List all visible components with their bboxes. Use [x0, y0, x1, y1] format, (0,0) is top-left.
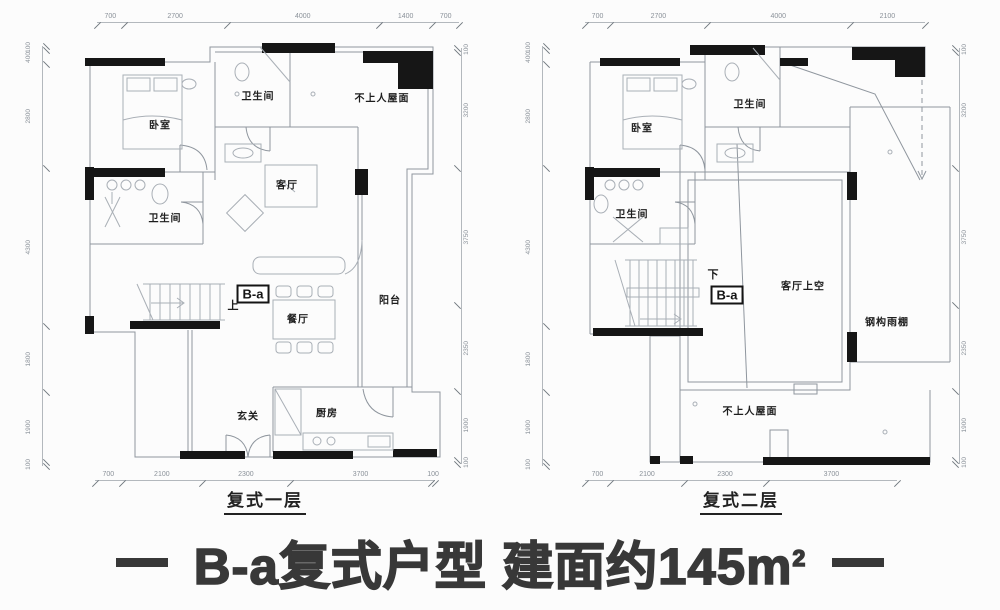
dim-value: 2800	[26, 64, 46, 167]
room-label-bedroom: 卧室	[149, 117, 171, 132]
room-label-bedroom: 卧室	[631, 120, 653, 135]
floorplan-level2: 700 2700 4000 2100 100 400 2800 4300 180…	[516, 2, 982, 516]
nightstand	[682, 79, 696, 89]
section-marker-ba: B-a	[711, 286, 744, 305]
sofa	[253, 257, 345, 274]
dim-value: 2700	[610, 10, 707, 26]
room-label-kitchen: 厨房	[316, 405, 338, 420]
title-superscript: 2	[793, 545, 807, 571]
floorplan-drawing-level2: 卧室 卫生间 卫生间 下 B-a 客厅上空 钢构雨棚 不上人屋面	[585, 32, 963, 472]
dim-value: 2700	[124, 10, 227, 26]
section-marker-ba: B-a	[237, 285, 270, 304]
floorplan-drawing-level1: 卧室 卫生间 不上人屋面 卫生间 客厅 阳台 上 B-a 餐厅 玄关 厨房	[85, 32, 463, 472]
dim-value: 700	[585, 10, 610, 26]
dim-value: 700	[432, 10, 459, 26]
dims-top-floor2: 700 2700 4000 2100	[585, 10, 925, 26]
walls-thin	[90, 47, 440, 457]
bed	[623, 75, 682, 149]
room-label-balcony: 阳台	[379, 292, 401, 307]
room-label-bath1: 卫生间	[242, 88, 275, 103]
room-label-bath2: 卫生间	[149, 210, 182, 225]
dims-left-floor1: 100 400 2800 4300 1800 1900 100	[26, 46, 46, 466]
title-text: B-a复式户型 建面约145m2	[194, 525, 807, 599]
toilet	[235, 63, 249, 81]
walls-thin	[590, 47, 950, 462]
dim-value: 2800	[526, 64, 546, 167]
dims-top-floor1: 700 2700 4000 1400 700	[97, 10, 459, 26]
title-dash-left	[116, 558, 168, 567]
room-label-roof: 不上人屋面	[723, 403, 778, 418]
caption-floor2: 复式二层	[585, 486, 897, 515]
dim-value: 700	[97, 10, 124, 26]
toilet	[152, 184, 168, 204]
dim-value: 4300	[526, 168, 546, 326]
room-label-living: 客厅	[276, 177, 298, 192]
furniture	[105, 47, 393, 450]
stairs	[137, 284, 225, 320]
room-label-bath2: 卫生间	[616, 206, 649, 221]
title-dash-right	[832, 558, 884, 567]
room-label-dining: 餐厅	[287, 311, 309, 326]
kitchen-counter	[275, 389, 393, 450]
dim-value: 4000	[707, 10, 850, 26]
floorplan-level1: 700 2700 4000 1400 700 100 400 2800 4300…	[18, 2, 484, 516]
dim-value: 1900	[26, 392, 46, 462]
dim-value: 1800	[526, 326, 546, 392]
room-label-bath1: 卫生间	[734, 96, 767, 111]
dim-value: 1800	[26, 326, 46, 392]
toilet	[594, 195, 608, 213]
dims-left-floor2: 100 400 2800 4300 1800 1900 100	[526, 46, 546, 466]
caption-floor1: 复式一层	[95, 486, 435, 515]
dim-value: 4000	[227, 10, 379, 26]
bed	[123, 75, 182, 149]
toilet	[725, 63, 739, 81]
nightstand	[182, 79, 196, 89]
walls-solid	[85, 43, 437, 459]
dim-value: 2100	[850, 10, 925, 26]
dim-value: 1400	[379, 10, 432, 26]
sink	[660, 228, 688, 244]
stairs-down-label: 下	[708, 266, 719, 282]
room-label-roof: 不上人屋面	[355, 90, 410, 105]
stairs	[615, 260, 699, 326]
room-label-living-void: 客厅上空	[781, 278, 825, 293]
room-label-canopy: 钢构雨棚	[865, 314, 909, 329]
room-label-entry: 玄关	[237, 408, 259, 423]
dim-value: 4300	[26, 168, 46, 326]
plan-title: B-a复式户型 建面约145m2	[0, 522, 1000, 602]
dim-value: 1900	[526, 392, 546, 462]
